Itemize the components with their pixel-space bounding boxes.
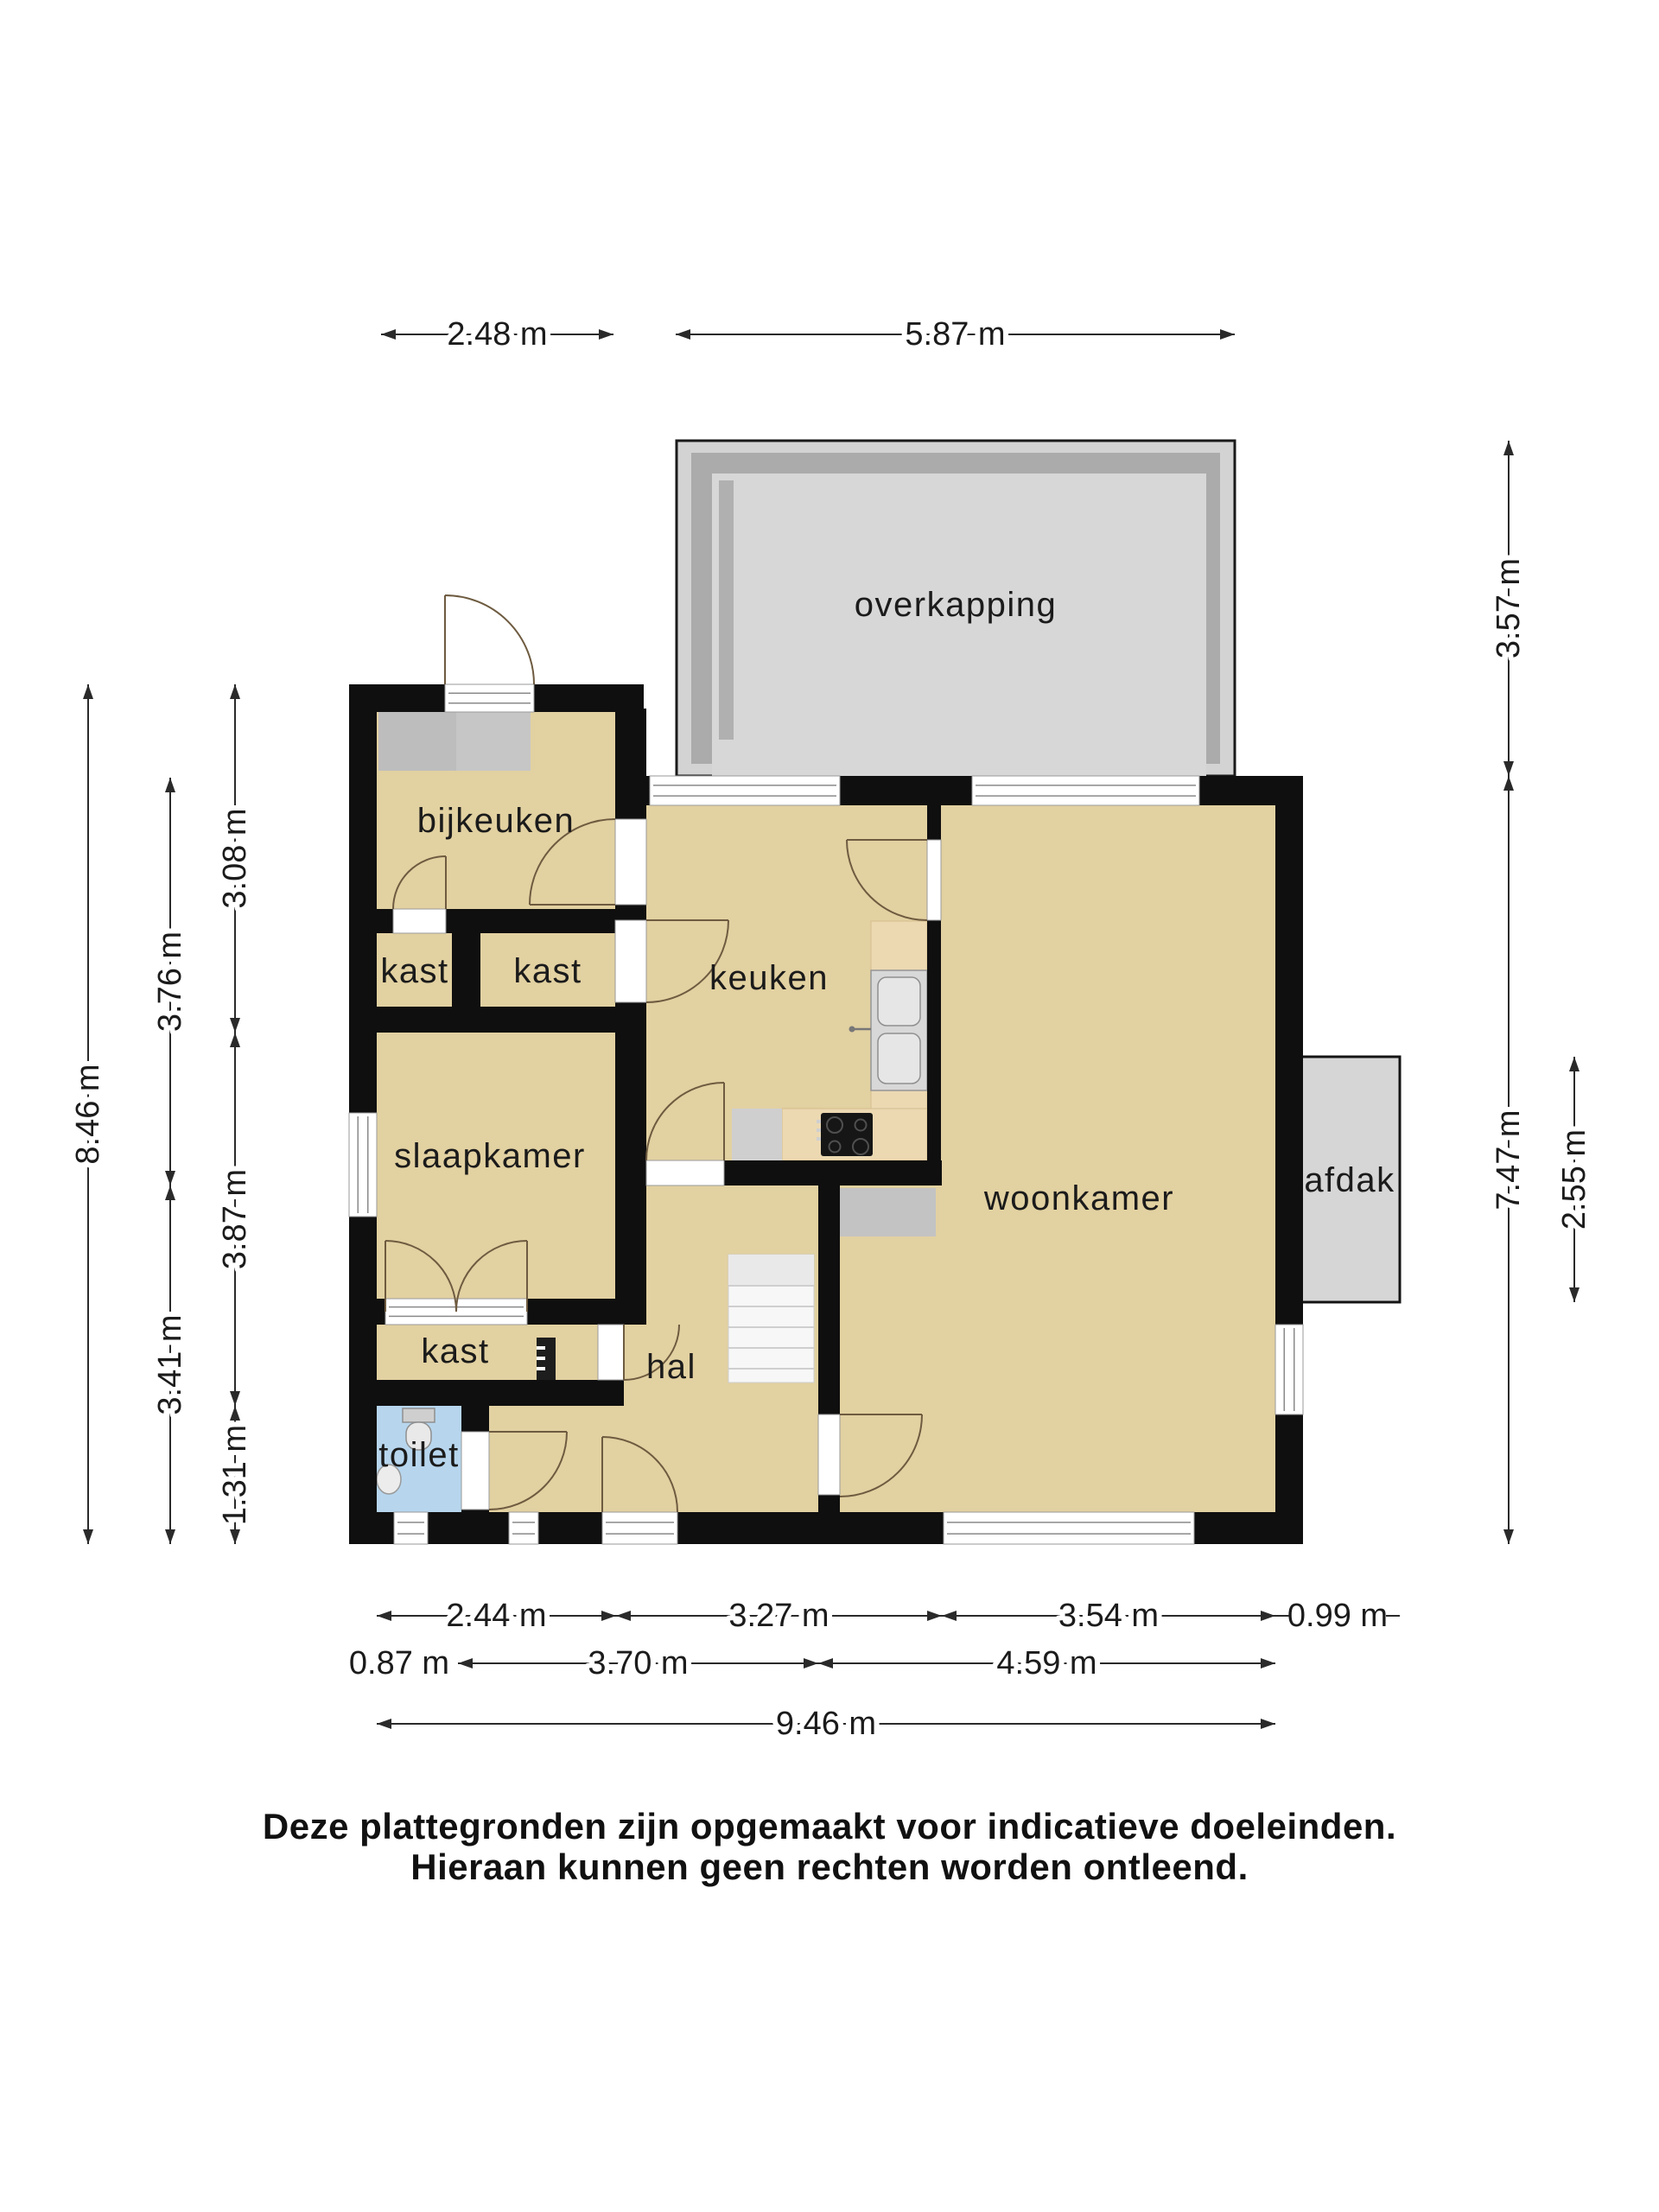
toilet-tank [403, 1408, 435, 1422]
disclaimer-line-1: Deze plattegronden zijn opgemaakt voor i… [0, 1806, 1659, 1847]
dim-arrowhead [377, 1611, 391, 1621]
dim-label: 3.27 m [728, 1598, 829, 1634]
sink-basin-top [878, 977, 920, 1026]
rect [817, 1120, 821, 1123]
door-keuken-woonkamer [927, 840, 941, 920]
window-hal-small [509, 1512, 538, 1544]
room-label-afdak: afdak [1304, 1161, 1395, 1199]
dim-label: 9.46 m [776, 1706, 876, 1742]
dim-label: 2.44 m [446, 1598, 546, 1634]
dim-label: 2.55 m [1556, 1129, 1592, 1230]
rect [817, 1128, 821, 1132]
dim-label: 0.99 m [1287, 1598, 1388, 1634]
dim-label: 3.57 m [1491, 558, 1527, 658]
room-label-overkapping: overkapping [855, 586, 1057, 624]
dim-label: 3.54 m [1058, 1598, 1159, 1634]
door-toilet [461, 1432, 489, 1510]
dim-label: 2.48 m [447, 316, 547, 353]
room-label-woonkamer: woonkamer [983, 1179, 1174, 1217]
dim-arrowhead [230, 1033, 240, 1047]
room-label-kast-3: kast [421, 1332, 489, 1370]
door-kast3-hal [598, 1325, 624, 1380]
dim-label: 3.70 m [588, 1645, 688, 1681]
room-label-toilet: toilet [378, 1436, 460, 1474]
dim-arrowhead [83, 684, 93, 699]
mat-woonkamer [838, 1188, 936, 1236]
rect [817, 1137, 821, 1141]
dim-label: 5.87 m [905, 316, 1005, 353]
dim-label: 4.59 m [996, 1645, 1096, 1681]
dim-arrowhead [83, 1529, 93, 1544]
disclaimer: Deze plattegronden zijn opgemaakt voor i… [0, 1806, 1659, 1887]
rect [537, 1357, 545, 1360]
door-bijkeuken-keuken [615, 819, 646, 905]
rect [537, 1346, 545, 1350]
overkapping-inner [712, 474, 1206, 776]
dim-arrowhead [1261, 1719, 1275, 1729]
rect [537, 1367, 545, 1370]
mat-bijkeuken-dark [378, 709, 456, 771]
room-label-hal: hal [646, 1348, 696, 1386]
door-hal-woonkamer [818, 1414, 840, 1495]
room-label-kast-1: kast [380, 952, 448, 990]
faucet [849, 1027, 855, 1033]
dim-arrowhead [804, 1658, 818, 1669]
dim-label: 7.47 m [1491, 1109, 1527, 1210]
door-front [602, 1512, 677, 1544]
door-bijkeuken-hal [393, 909, 446, 933]
dim-arrowhead [165, 778, 175, 792]
dim-arrowhead [377, 1719, 391, 1729]
door-kast2-keuken [615, 920, 646, 1002]
dim-arrowhead [676, 329, 690, 340]
dim-arrowhead [927, 1611, 942, 1621]
dim-arrowhead [230, 684, 240, 699]
window-toilet [394, 1512, 428, 1544]
disclaimer-line-2: Hieraan kunnen geen rechten worden ontle… [0, 1847, 1659, 1887]
dim-arrowhead [230, 1391, 240, 1406]
wall-kast3-bottom [349, 1380, 624, 1406]
dim-arrowhead [942, 1611, 957, 1621]
dim-arrowhead [1261, 1658, 1275, 1669]
wall-right [1275, 776, 1303, 1544]
dim-label: 0.87 m [349, 1645, 449, 1681]
dim-label: 3.76 m [152, 931, 188, 1032]
window-slaapkamer [349, 1113, 377, 1217]
dim-arrowhead [458, 1658, 473, 1669]
room-label-bijkeuken: bijkeuken [417, 802, 575, 840]
dim-label: 1.31 m [217, 1425, 253, 1525]
dim-label: 3.08 m [217, 808, 253, 908]
dim-arrowhead [1569, 1287, 1580, 1302]
kitchen-counter-gray [732, 1109, 782, 1160]
dim-arrowhead [1569, 1057, 1580, 1071]
dim-arrowhead [165, 1185, 175, 1200]
window-top-woonkamer [972, 776, 1199, 805]
window-top-keuken [650, 776, 840, 805]
dim-arrowhead [230, 1529, 240, 1544]
dim-arrowhead [165, 1171, 175, 1185]
window-woonkamer-right [1275, 1325, 1303, 1414]
dim-arrowhead [616, 1611, 631, 1621]
overkapping-post [719, 480, 734, 740]
dim-arrowhead [599, 329, 613, 340]
dim-label: 3.41 m [152, 1314, 188, 1414]
dim-arrowhead [1261, 1611, 1275, 1621]
dim-arrowhead [230, 1018, 240, 1033]
dim-arrowhead [1503, 761, 1514, 776]
dim-arrowhead [165, 1529, 175, 1544]
dim-label: 3.87 m [217, 1169, 253, 1269]
dim-arrowhead [601, 1611, 616, 1621]
room-label-kast-2: kast [513, 952, 582, 990]
door-hal-keuken [646, 1160, 724, 1185]
door-bijkeuken-exterior [445, 684, 534, 712]
dim-arrowhead [381, 329, 396, 340]
dim-arrowhead [230, 1406, 240, 1421]
dim-arrowhead [1503, 1529, 1514, 1544]
wall-kast-divider [452, 933, 480, 1007]
window-woonkamer-bottom [944, 1512, 1194, 1544]
dim-arrowhead [1503, 441, 1514, 455]
dim-label: 8.46 m [70, 1064, 106, 1164]
dim-arrowhead [1503, 776, 1514, 791]
dim-arrowhead [818, 1658, 833, 1669]
swing-bijkeuken-exterior [445, 595, 534, 684]
room-label-keuken: keuken [709, 959, 829, 997]
sink-basin-bottom [878, 1033, 920, 1084]
floorplan-page: overkappingbijkeukenkastkastkeukenwoonka… [0, 0, 1659, 2212]
dim-arrowhead [1220, 329, 1235, 340]
stairs-landing [728, 1255, 814, 1286]
wall-kast-bottom [349, 1007, 646, 1033]
room-label-slaapkamer: slaapkamer [394, 1137, 586, 1175]
